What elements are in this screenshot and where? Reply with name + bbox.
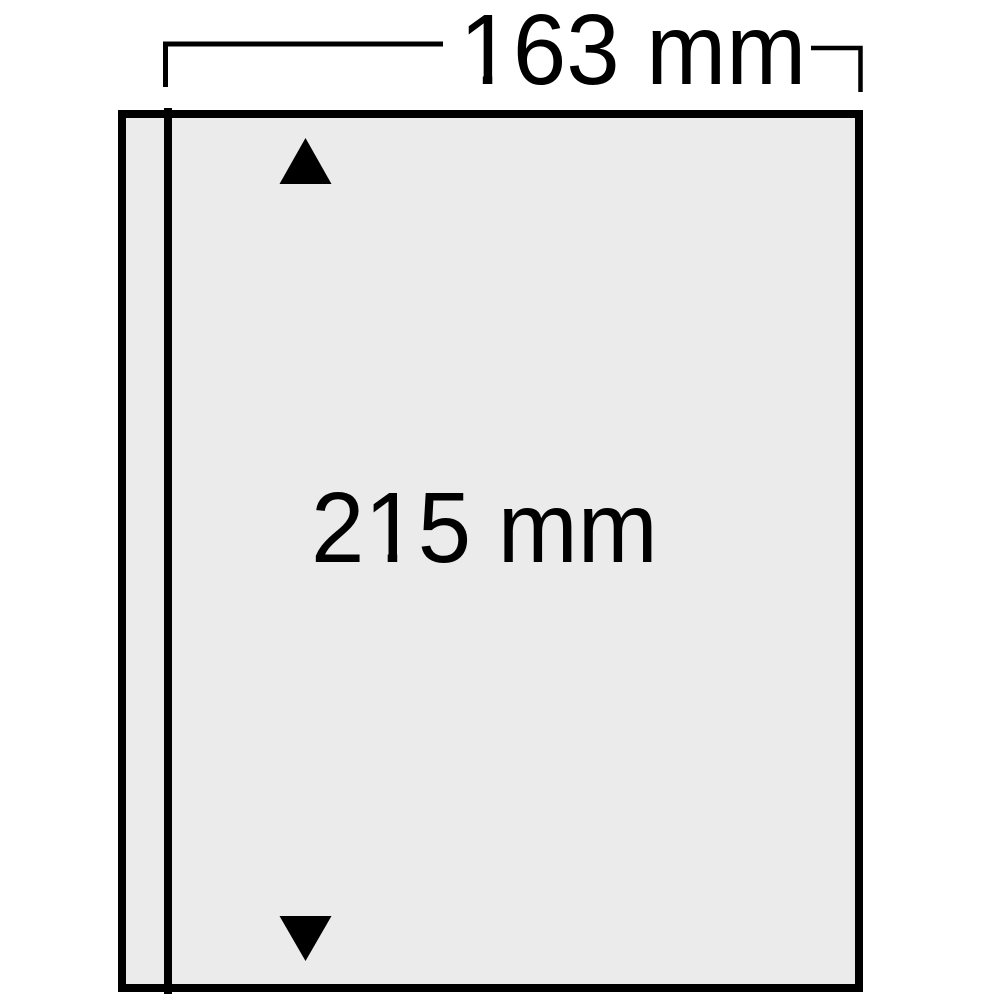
svg-text:215 mm: 215 mm [311,471,658,583]
svg-text:163 mm: 163 mm [460,0,807,105]
